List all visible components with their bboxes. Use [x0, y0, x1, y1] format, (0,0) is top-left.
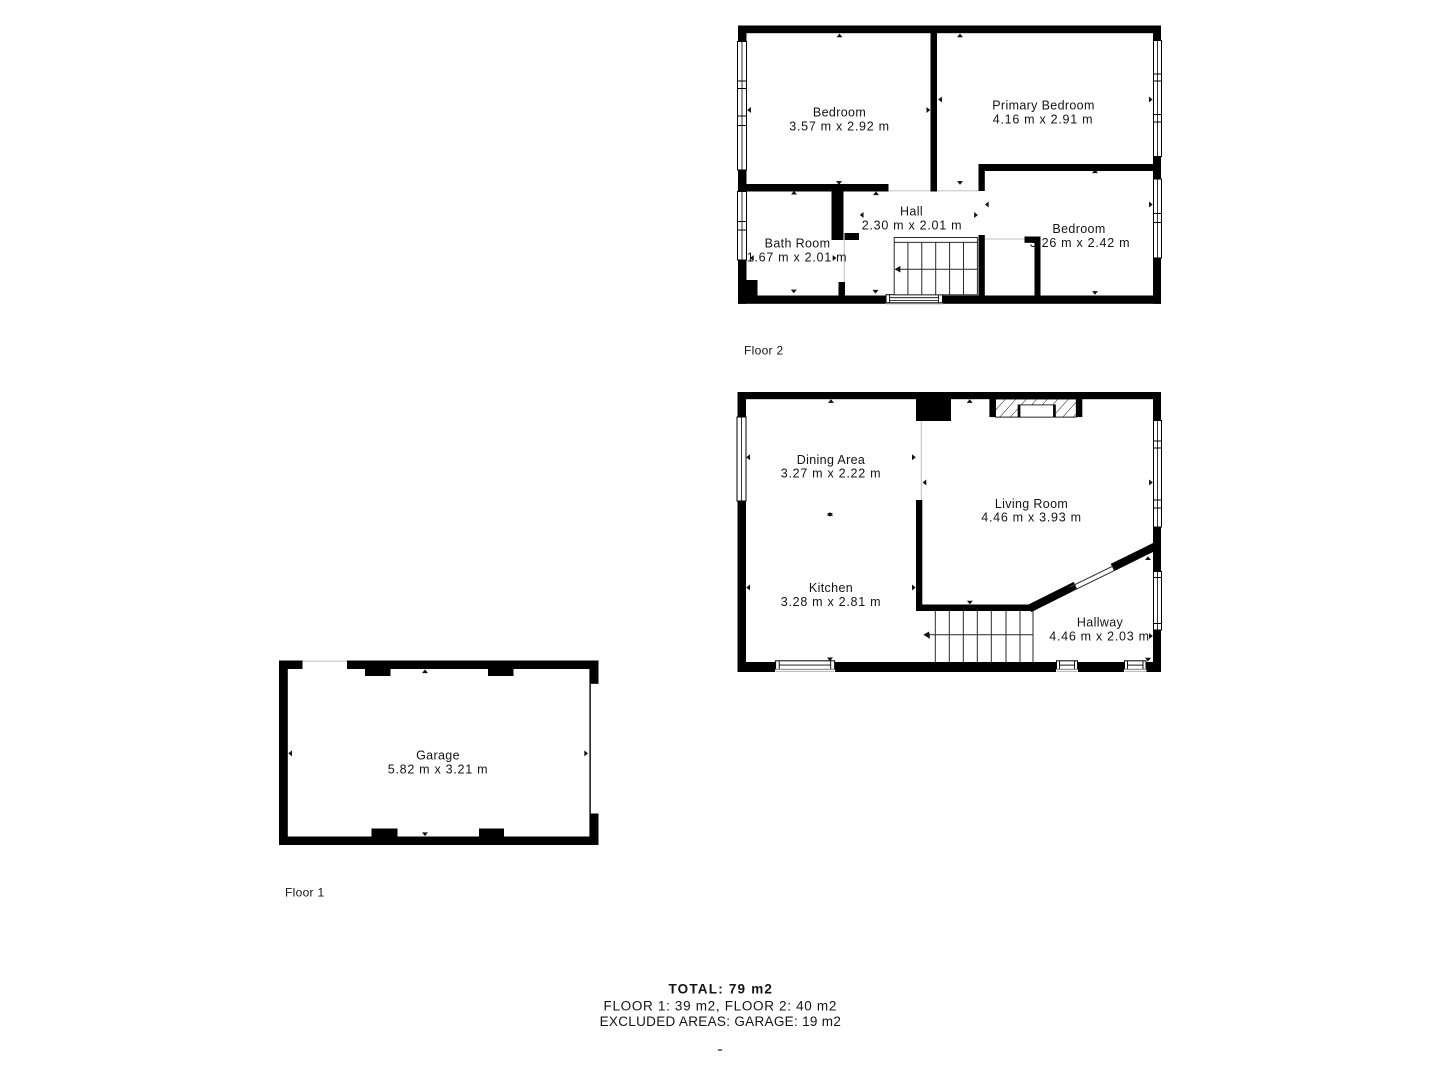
svg-text:EXCLUDED AREAS: GARAGE: 19 m2: EXCLUDED AREAS: GARAGE: 19 m2	[600, 1014, 842, 1029]
svg-text:Hall: Hall	[900, 205, 923, 219]
svg-text:4.16 m x 2.91 m: 4.16 m x 2.91 m	[993, 112, 1093, 126]
svg-text:3.28 m x 2.81 m: 3.28 m x 2.81 m	[781, 595, 881, 609]
svg-text:5.82 m x 3.21 m: 5.82 m x 3.21 m	[388, 762, 488, 776]
svg-text:2.30 m x 2.01 m: 2.30 m x 2.01 m	[862, 218, 962, 232]
svg-text:3.26 m x 2.42 m: 3.26 m x 2.42 m	[1030, 236, 1130, 250]
svg-text:Bedroom: Bedroom	[1052, 222, 1105, 236]
svg-text:Garage: Garage	[416, 749, 460, 763]
svg-text:Bath Room: Bath Room	[765, 237, 831, 251]
svg-text:Hallway: Hallway	[1077, 616, 1124, 630]
svg-text:4.46 m x 3.93 m: 4.46 m x 3.93 m	[981, 511, 1081, 525]
svg-text:Primary Bedroom: Primary Bedroom	[992, 99, 1095, 113]
svg-text:Dining Area: Dining Area	[797, 453, 865, 467]
svg-text:3.57 m x 2.92 m: 3.57 m x 2.92 m	[789, 119, 889, 133]
svg-text:TOTAL: 79 m2: TOTAL: 79 m2	[668, 981, 773, 996]
svg-text:Kitchen: Kitchen	[809, 581, 853, 595]
svg-text:FLOOR 1: 39 m2, FLOOR 2: 40 m2: FLOOR 1: 39 m2, FLOOR 2: 40 m2	[604, 999, 837, 1014]
svg-text:Floor 1: Floor 1	[285, 886, 324, 900]
svg-text:1.67 m x 2.01 m: 1.67 m x 2.01 m	[747, 250, 847, 264]
svg-text:Living Room: Living Room	[995, 497, 1068, 511]
svg-text:4.46 m x 2.03 m: 4.46 m x 2.03 m	[1049, 629, 1149, 643]
svg-text:3.27 m x 2.22 m: 3.27 m x 2.22 m	[781, 467, 881, 481]
svg-text:Bedroom: Bedroom	[813, 106, 866, 120]
svg-text:Floor 2: Floor 2	[744, 344, 783, 358]
